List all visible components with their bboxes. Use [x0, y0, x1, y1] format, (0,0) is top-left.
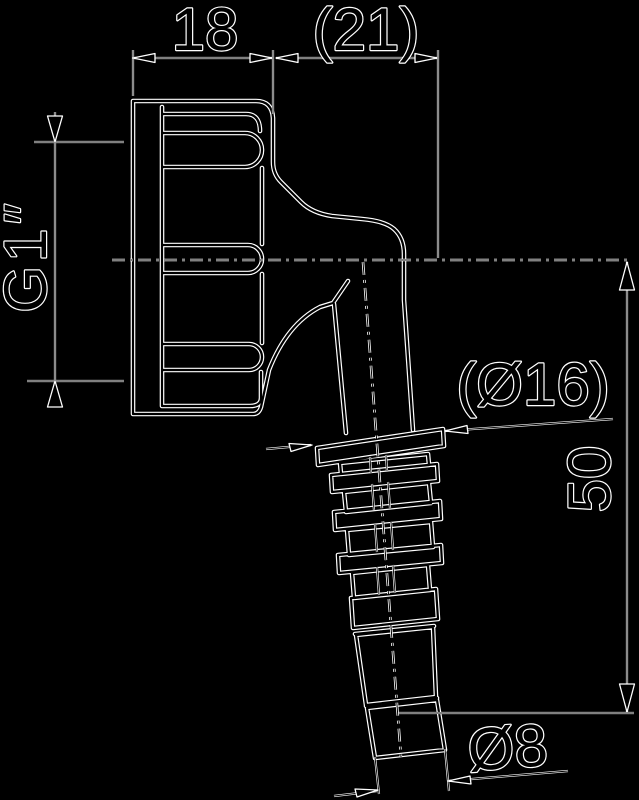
- dimension-labels: 18 (21) G1″ (Ø16) 50 Ø8: [0, 0, 623, 784]
- dim-label-tip-dia-8: Ø8: [465, 711, 550, 783]
- dim-label-width-18: 18: [172, 0, 239, 63]
- dim-label-flange-dia-16: (Ø16): [456, 351, 609, 418]
- dimension-arrowheads: [48, 54, 635, 798]
- part-outline-halo: [133, 101, 445, 758]
- technical-drawing-canvas: 18 (21) G1″ (Ø16) 50 Ø8: [0, 0, 639, 800]
- technical-drawing-page: 18 (21) G1″ (Ø16) 50 Ø8: [0, 0, 639, 800]
- part-outline-core: [133, 101, 445, 758]
- dim-label-width-21: (21): [313, 0, 420, 63]
- dimension-lines: [27, 50, 634, 796]
- dim-label-thread-g1: G1″: [0, 199, 59, 312]
- part-outline: [133, 101, 445, 758]
- dimension-lines-halo: [27, 50, 634, 796]
- dim-label-length-50: 50: [556, 446, 623, 513]
